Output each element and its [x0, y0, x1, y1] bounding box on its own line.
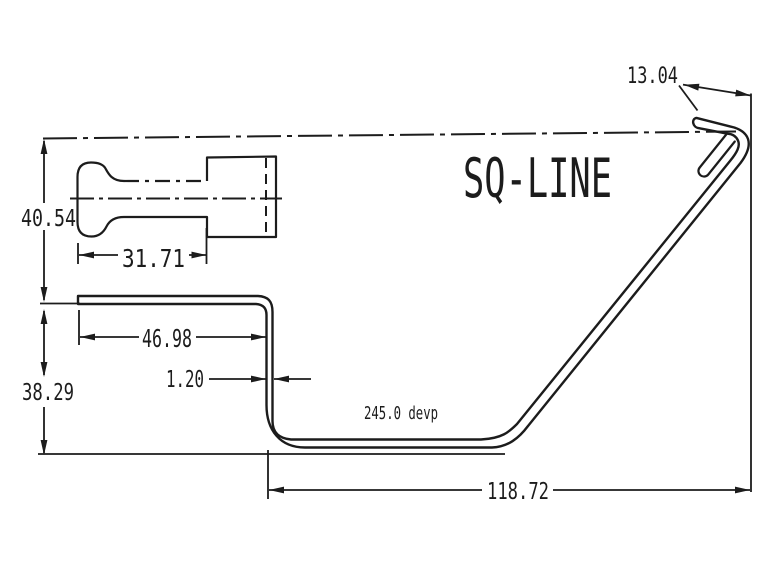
detail-bulb-outline — [78, 163, 208, 237]
arrowhead-left — [79, 252, 94, 259]
arrowhead-up — [41, 139, 48, 154]
dim-thickness-label: 1.20 — [166, 367, 204, 393]
arrowhead-down — [41, 287, 48, 302]
drawing-sheet: 40.54 38.29 31.71 46.98 1.20 — [0, 0, 768, 576]
main-centerline — [43, 132, 736, 139]
dim-base-length-label: 118.72 — [487, 479, 549, 505]
dim-hem-length-label: 31.71 — [122, 244, 185, 273]
dim-top-flange-label: 46.98 — [142, 324, 192, 353]
dim-hook-width-label: 13.04 — [627, 64, 678, 89]
arrowhead-right — [251, 376, 266, 383]
arrowhead-left — [80, 334, 95, 341]
arrowhead-left — [274, 376, 289, 383]
arrowhead-right — [251, 334, 266, 341]
dim-thickness: 1.20 — [166, 367, 311, 393]
dim-lower-height-label: 38.29 — [22, 380, 74, 406]
arrowhead-left — [684, 84, 699, 91]
profile-outline — [78, 118, 749, 448]
extension-line-left — [679, 86, 698, 111]
drawing-title: SQ-LINE — [463, 147, 612, 210]
dim-hook-width: 13.04 — [627, 64, 752, 111]
dim-upper-height: 40.54 — [21, 139, 76, 302]
gutter-profile-drawing: 40.54 38.29 31.71 46.98 1.20 — [0, 0, 768, 576]
arrowhead-right — [735, 487, 750, 494]
developed-length-note: 245.0 devp — [364, 403, 438, 424]
dim-upper-height-label: 40.54 — [21, 206, 76, 232]
hem-edge — [698, 135, 734, 177]
dim-top-flange: 46.98 — [79, 310, 266, 353]
hem-detail-view — [70, 157, 282, 238]
arrowhead-down — [41, 362, 48, 377]
arrowhead-left — [269, 487, 284, 494]
arrowhead-right — [735, 90, 750, 97]
arrowhead-up — [41, 309, 48, 324]
arrowhead-right — [192, 252, 207, 259]
arrowhead-down — [41, 440, 48, 455]
